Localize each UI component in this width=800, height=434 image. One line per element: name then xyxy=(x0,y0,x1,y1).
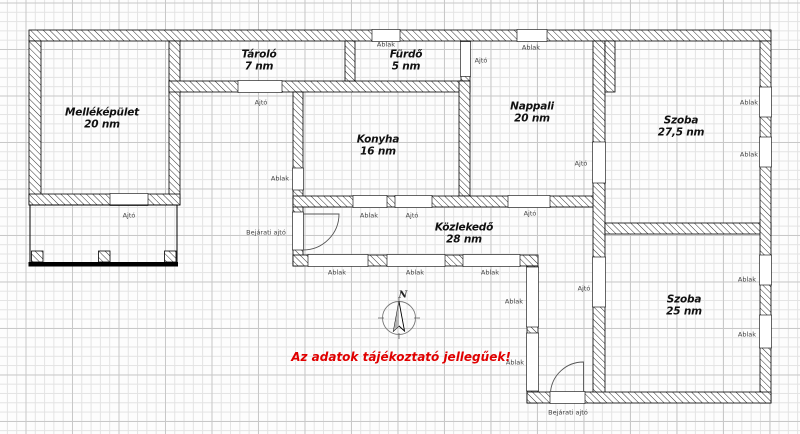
compass-rose xyxy=(378,297,420,339)
window-label: Ablak xyxy=(271,176,289,183)
porch-base-line xyxy=(29,262,179,267)
door-label: Ajtó xyxy=(475,58,488,65)
door-opening xyxy=(293,212,304,250)
window-opening xyxy=(308,255,368,267)
door-opening xyxy=(110,194,148,206)
door-opening xyxy=(508,196,550,208)
window-label: Ablak xyxy=(738,277,756,284)
window-opening xyxy=(517,30,547,42)
door-opening xyxy=(238,81,282,93)
door-label: Ajtó xyxy=(255,100,268,107)
window-label: Ablak xyxy=(505,299,523,306)
walls xyxy=(29,30,771,403)
window-opening xyxy=(760,87,772,117)
window-label: Ablak xyxy=(740,100,758,107)
room-label-room2: Szoba25 nm xyxy=(666,295,702,318)
wall-hall-top xyxy=(293,196,605,207)
window-label: Ablak xyxy=(522,45,540,52)
porch-pillar xyxy=(99,251,111,262)
entrance-door-swing-left xyxy=(303,214,339,250)
window-label: Ablak xyxy=(377,42,395,49)
window-opening xyxy=(760,137,772,167)
room-label-room1: Szoba27,5 nm xyxy=(658,116,705,139)
room-label-hallway: Közlekedő28 nm xyxy=(435,223,493,246)
window-opening xyxy=(760,255,772,285)
window-opening xyxy=(527,333,539,391)
room-label-bathroom: Fürdő5 nm xyxy=(390,50,423,73)
wall-outbuilding-left xyxy=(29,41,41,205)
door-label: Ajtó xyxy=(575,161,588,168)
window-opening xyxy=(463,255,520,267)
disclaimer-text: Az adatok tájékoztató jellegűek! xyxy=(291,350,511,364)
door-label: Ajtó xyxy=(578,286,591,293)
door-opening xyxy=(550,392,585,404)
door-label: Ajtó xyxy=(524,211,537,218)
wall-living-right xyxy=(593,41,605,403)
door-opening xyxy=(593,142,606,183)
wall-storage-bath-bottom xyxy=(169,81,470,92)
window-label: Ablak xyxy=(360,213,378,220)
wall-kitchen-living-divider xyxy=(459,81,470,196)
wall-outbuilding-bottom xyxy=(29,194,180,205)
door-label: Ajtó xyxy=(123,213,136,220)
room-label-storage: Tároló7 nm xyxy=(241,50,276,73)
porch-pillar xyxy=(165,251,177,262)
entrance-door-label: Bejárati ajtó xyxy=(246,230,286,237)
window-label: Ablak xyxy=(740,152,758,159)
window-label: Ablak xyxy=(406,270,424,277)
wall-room1-left-pilaster xyxy=(605,41,615,92)
room-label-outbuilding: Melléképület20 nm xyxy=(65,108,139,131)
entrance-door-swing-bottom xyxy=(551,362,584,392)
room-label-kitchen: Konyha16 nm xyxy=(357,135,399,158)
window-label: Ablak xyxy=(481,270,499,277)
window-opening xyxy=(353,196,387,208)
window-opening xyxy=(760,315,772,348)
wall-outbuilding-right xyxy=(169,41,180,205)
porch-pillar xyxy=(32,251,44,262)
door-opening xyxy=(395,196,432,208)
compass-north-label: N xyxy=(399,290,408,301)
porch xyxy=(29,205,179,267)
window-label: Ablak xyxy=(738,332,756,339)
window-label: Ablak xyxy=(328,270,346,277)
wall-between-rooms xyxy=(605,223,771,234)
entrance-door-label: Bejárati ajtó xyxy=(548,410,588,417)
window-opening xyxy=(387,255,445,267)
door-opening xyxy=(593,257,606,307)
window-opening xyxy=(293,168,304,190)
room-label-living: Nappali20 nm xyxy=(510,102,554,125)
wall-storage-bath-divider xyxy=(345,41,355,81)
door-opening xyxy=(461,42,471,77)
door-label: Ajtó xyxy=(406,213,419,220)
floor-plan: Melléképület20 nm Tároló7 nm Fürdő5 nm K… xyxy=(0,0,800,434)
window-opening xyxy=(527,267,539,327)
